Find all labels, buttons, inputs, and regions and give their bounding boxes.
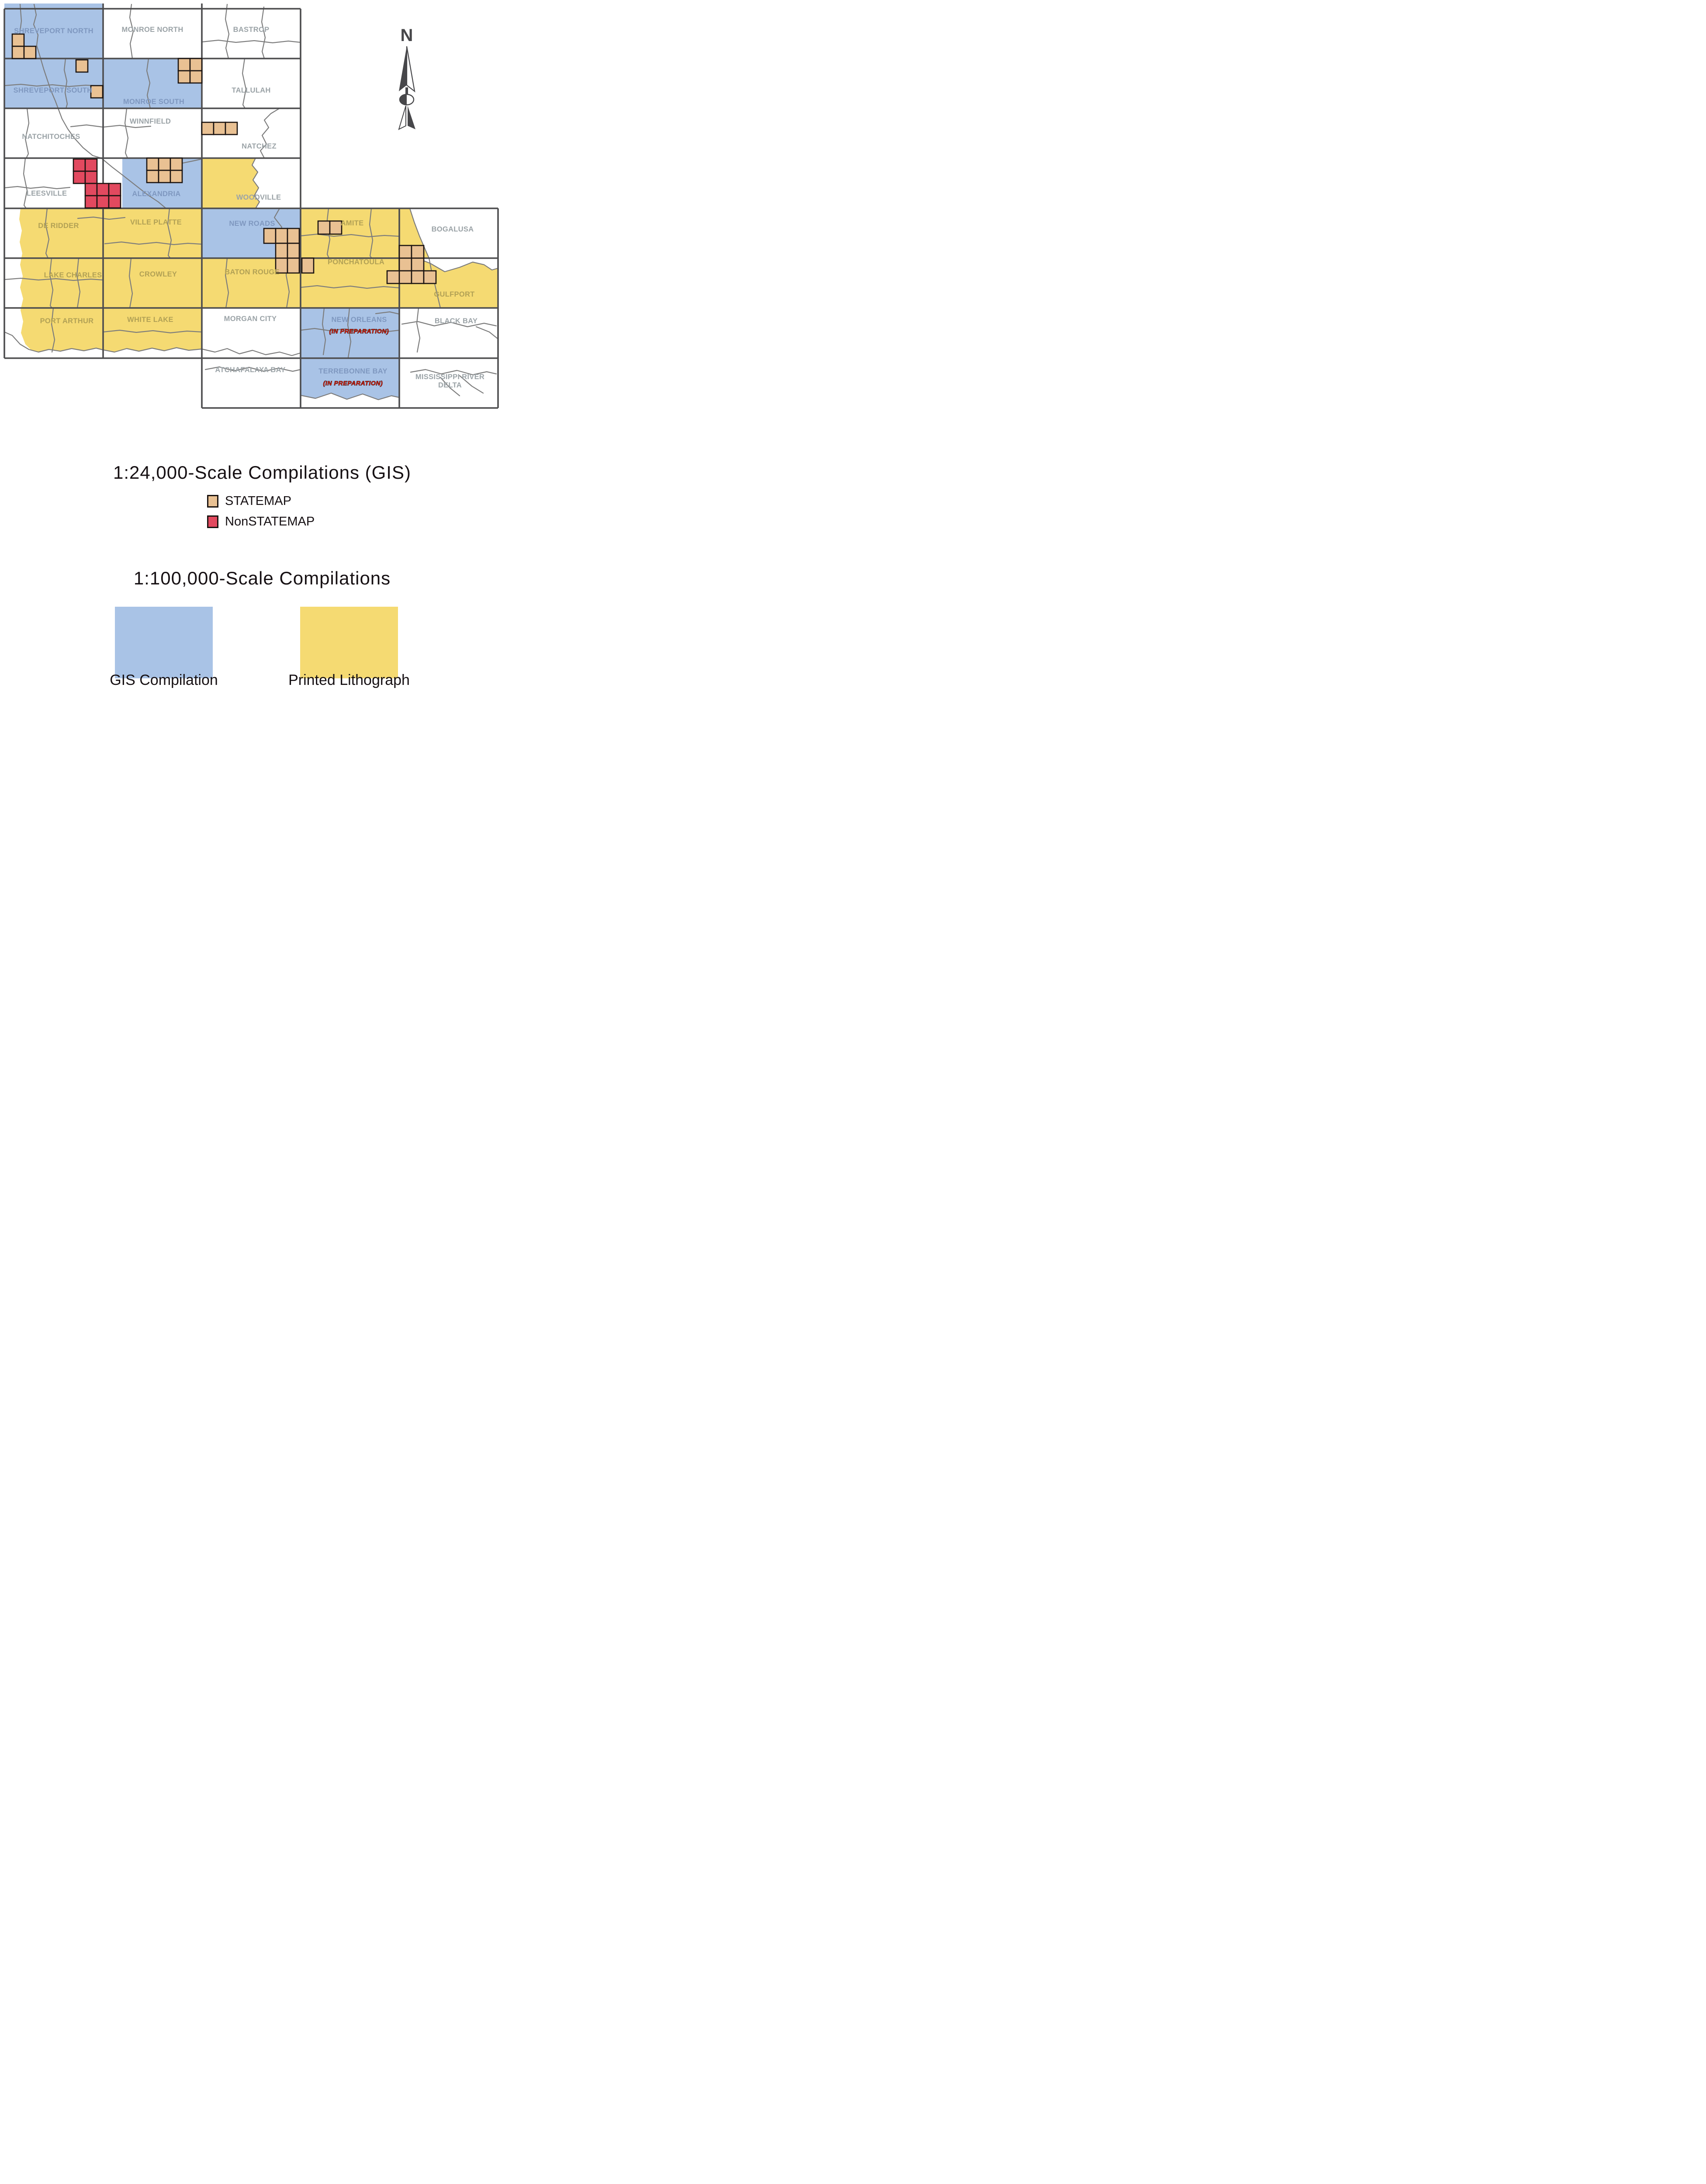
- statemap-shreveport-north-cell: [12, 46, 24, 59]
- statemap-new-roads-baton-rouge-cell: [276, 228, 287, 243]
- quad-label: SHREVEPORT NORTH: [14, 27, 93, 35]
- statemap-alexandria-cell: [159, 158, 170, 170]
- nonstatemap-swatch: [207, 515, 218, 528]
- quad-label: TALLULAH: [232, 86, 270, 94]
- statemap-alexandria-cell: [147, 158, 159, 170]
- nonstatemap-leesville-cell: [109, 196, 121, 208]
- parish-boundary-line: [242, 59, 246, 108]
- north-arrow-head-left: [399, 46, 407, 91]
- statemap-shreveport-south-cell: [91, 86, 103, 98]
- parish-boundary-line: [225, 4, 229, 59]
- nonstatemap-leesville-cell: [97, 183, 109, 196]
- statemap-alexandria-cell: [170, 170, 182, 183]
- statemap-winnfield-natchez-cell: [225, 122, 237, 135]
- statemap-swatch: [207, 495, 218, 508]
- nonstatemap-leesville-cell: [73, 171, 85, 183]
- gis-compilation-label: GIS Compilation: [98, 672, 229, 688]
- statemap-ponchatoula-gulfport-cell: [424, 271, 436, 283]
- statemap-ponchatoula-gulfport-cell: [399, 271, 412, 283]
- quad-label: CROWLEY: [139, 270, 177, 278]
- statemap-winnfield-natchez-cell: [214, 122, 225, 135]
- quad-label: NATCHITOCHES: [22, 133, 80, 141]
- statemap-ponchatoula-gulfport-cell: [412, 245, 424, 258]
- quad-label: BASTROP: [233, 26, 270, 34]
- quad-label: ATCHAFALAYA BAY: [215, 366, 285, 374]
- statemap-ponchatoula-gulfport-cell: [412, 258, 424, 271]
- legend-item-nonstatemap: NonSTATEMAP: [207, 515, 315, 529]
- statemap-alexandria-cell: [147, 170, 159, 183]
- statemap-alexandria-cell: [159, 170, 170, 183]
- quad-label: LAKE CHARLES: [44, 271, 102, 279]
- quad-label: MONROE SOUTH: [123, 98, 184, 106]
- parish-boundary-line: [476, 327, 498, 339]
- quad-crowley: [103, 258, 202, 308]
- legend-24k-title: 1:24,000-Scale Compilations (GIS): [0, 462, 524, 483]
- quad-label: MONROE NORTH: [121, 26, 183, 34]
- quad-amite: [301, 208, 399, 258]
- parish-boundary-line: [202, 349, 301, 356]
- quad-label: VILLE PLATTE: [130, 218, 182, 226]
- parish-boundary-line: [417, 308, 420, 352]
- statemap-ponchatoula-gulfport-cell: [412, 271, 424, 283]
- nonstatemap-leesville-cell: [73, 159, 85, 171]
- nonstatemap-leesville-cell: [85, 183, 97, 196]
- parish-boundary-line: [4, 187, 70, 189]
- quad-label: TERREBONNE BAY: [318, 367, 388, 375]
- quad-label: WINNFIELD: [130, 117, 171, 125]
- quad-label: PORT ARTHUR: [40, 317, 94, 325]
- quad-label: ALEXANDRIA: [132, 190, 180, 198]
- nonstatemap-leesville-cell: [109, 183, 121, 196]
- parish-boundary-line: [202, 40, 301, 43]
- statemap-shreveport-north-cell: [24, 46, 36, 59]
- quad-label: BLACK BAY: [435, 317, 478, 325]
- statemap-winnfield-natchez-cell: [202, 122, 214, 135]
- legend-100k-title: 1:100,000-Scale Compilations: [0, 568, 524, 589]
- statemap-ponchatoula-gulfport-cell: [399, 258, 412, 271]
- statemap-ponchatoula-gulfport-cell: [387, 271, 399, 283]
- quad-label: LEESVILLE: [27, 190, 67, 197]
- quad-label: WOODVILLE: [236, 194, 281, 201]
- quad-ville-platte: [103, 208, 202, 258]
- quad-label: MORGAN CITY: [224, 315, 277, 323]
- printed-lithograph-swatch: [300, 607, 398, 678]
- parish-boundary-line: [125, 108, 128, 158]
- quad-label: PONCHATOULA: [328, 258, 384, 266]
- nonstatemap-leesville-cell: [85, 159, 97, 171]
- statemap-alexandria-cell: [170, 158, 182, 170]
- parish-boundary-line: [260, 108, 280, 158]
- north-arrow-tail-left: [399, 106, 406, 129]
- louisiana-quadrangle-index-map: SHREVEPORT NORTHMONROE NORTHBASTROPSHREV…: [0, 0, 524, 419]
- in-preparation-label: (IN PREPARATION): [323, 380, 383, 387]
- statemap-monroe-south-cell: [190, 59, 202, 71]
- north-arrow-globe-half: [400, 94, 407, 105]
- quad-label: BOGALUSA: [432, 225, 474, 233]
- nonstatemap-leesville-cell: [85, 196, 97, 208]
- statemap-new-roads-baton-rouge-cell: [287, 243, 299, 258]
- statemap-new-roads-baton-rouge-cell: [264, 228, 276, 243]
- legend-item-statemap: STATEMAP: [207, 494, 291, 508]
- quad-label: MISSISSIPPI RIVERDELTA: [415, 373, 484, 389]
- in-preparation-label: (IN PREPARATION): [329, 328, 389, 335]
- statemap-label: STATEMAP: [225, 494, 291, 508]
- statemap-new-roads-baton-rouge-cell: [287, 258, 299, 273]
- quad-label: DE RIDDER: [38, 222, 79, 230]
- north-arrow-tail-right: [408, 106, 415, 129]
- statemap-monroe-south-cell: [190, 71, 202, 83]
- nonstatemap-label: NonSTATEMAP: [225, 515, 315, 529]
- gis-compilation-swatch: [115, 607, 213, 678]
- quad-label: WHITE LAKE: [127, 316, 173, 324]
- statemap-shreveport-north-cell: [12, 34, 24, 46]
- printed-lithograph-label: Printed Lithograph: [284, 672, 415, 688]
- quad-label: AMITE: [341, 219, 364, 227]
- statemap-monroe-south-cell: [178, 71, 190, 83]
- statemap-amite-cell: [318, 221, 330, 234]
- statemap-shreveport-south-east-cell: [76, 60, 88, 72]
- quad-label: BATON ROUGE: [225, 268, 280, 276]
- quad-label: SHREVEPORT SOUTH: [14, 86, 93, 94]
- statemap-monroe-south-cell: [178, 59, 190, 71]
- north-label: N: [401, 26, 413, 45]
- parish-boundary-line: [24, 158, 27, 208]
- statemap-new-roads-baton-rouge-cell: [302, 258, 314, 273]
- quad-label: NEW ROADS: [229, 220, 275, 228]
- quad-label: NATCHEZ: [242, 142, 277, 150]
- quad-label: GULFPORT: [434, 290, 474, 298]
- nonstatemap-leesville-cell: [97, 196, 109, 208]
- statemap-new-roads-baton-rouge-cell: [287, 228, 299, 243]
- nonstatemap-leesville-cell: [85, 171, 97, 183]
- north-arrow-head-right: [407, 46, 415, 91]
- statemap-amite-cell: [330, 221, 342, 234]
- page: SHREVEPORT NORTHMONROE NORTHBASTROPSHREV…: [0, 0, 524, 688]
- north-arrow-stem: [405, 87, 408, 94]
- statemap-new-roads-baton-rouge-cell: [276, 243, 287, 258]
- statemap-ponchatoula-gulfport-cell: [399, 245, 412, 258]
- quad-label: NEW ORLEANS: [331, 316, 387, 324]
